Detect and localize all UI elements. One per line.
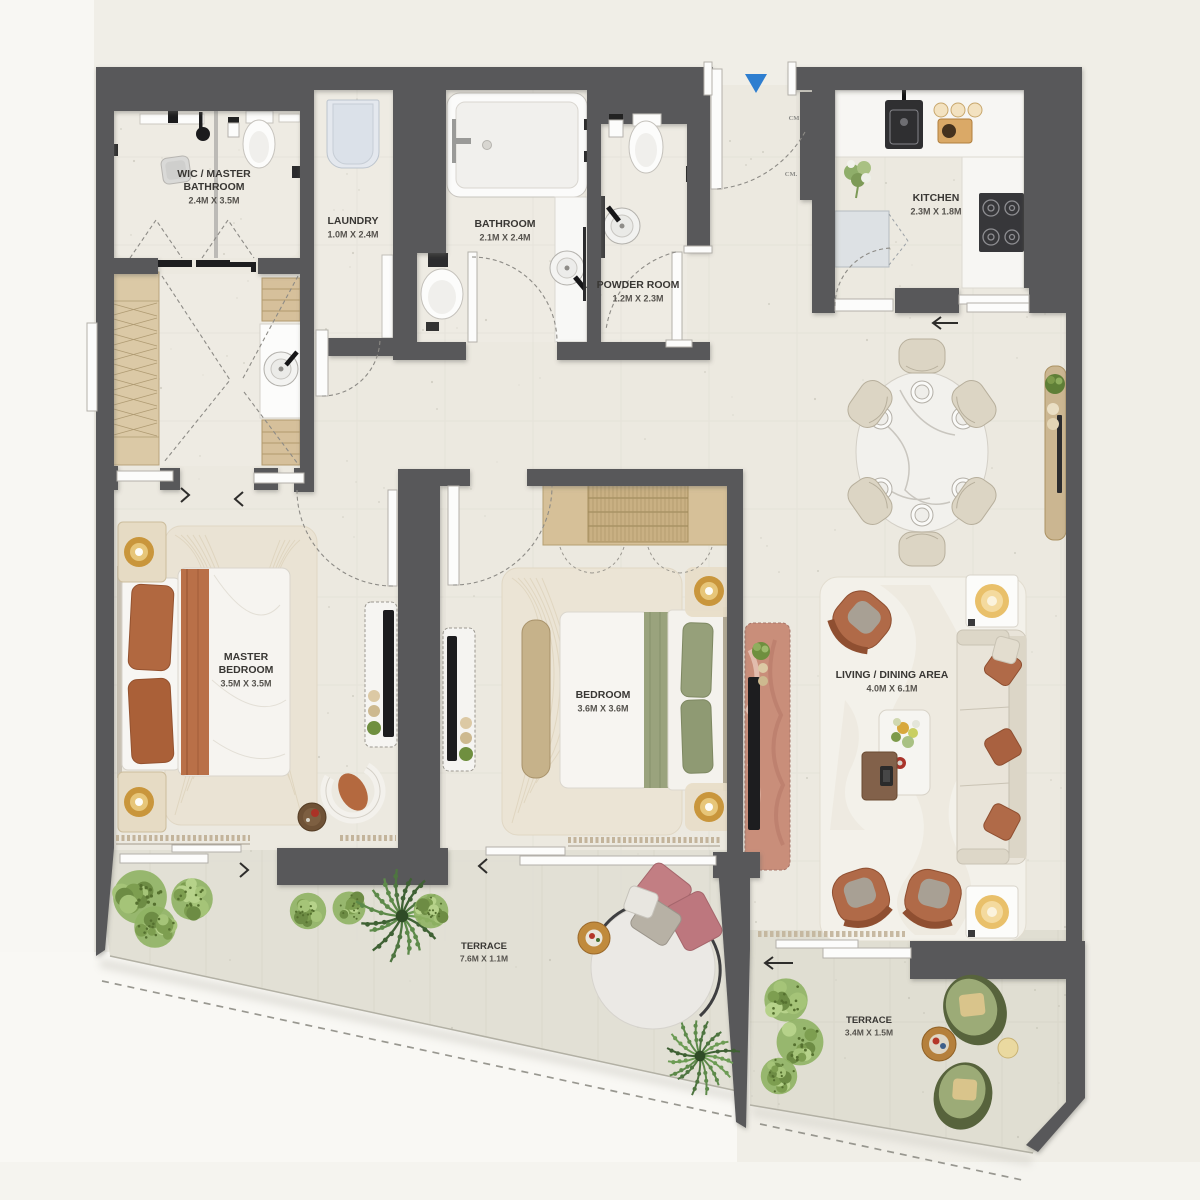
svg-text:BEDROOM: BEDROOM [576,689,631,701]
svg-text:3.6M X 3.6M: 3.6M X 3.6M [577,704,628,714]
svg-text:LIVING / DINING AREA: LIVING / DINING AREA [836,669,949,681]
svg-text:3.5M X 3.5M: 3.5M X 3.5M [220,679,271,689]
svg-text:KITCHEN: KITCHEN [913,192,960,204]
svg-text:7.6M X 1.1M: 7.6M X 1.1M [460,954,508,964]
svg-text:BEDROOM: BEDROOM [219,664,274,676]
svg-text:MASTER: MASTER [224,651,269,663]
svg-text:2.3M X 1.8M: 2.3M X 1.8M [910,207,961,217]
svg-text:3.4M X 1.5M: 3.4M X 1.5M [845,1028,893,1038]
svg-text:CM: CM [789,115,800,122]
svg-text:2.4M X 3.5M: 2.4M X 3.5M [188,196,239,206]
svg-text:4.0M X 6.1M: 4.0M X 6.1M [866,684,917,694]
svg-text:1.0M X 2.4M: 1.0M X 2.4M [327,230,378,240]
svg-text:BATHROOM: BATHROOM [183,181,244,193]
svg-text:WIC / MASTER: WIC / MASTER [177,168,251,180]
svg-text:TERRACE: TERRACE [846,1015,892,1026]
svg-text:1.2M X 2.3M: 1.2M X 2.3M [612,294,663,304]
svg-text:TERRACE: TERRACE [461,941,507,952]
svg-text:2.1M X 2.4M: 2.1M X 2.4M [479,233,530,243]
svg-text:POWDER ROOM: POWDER ROOM [597,279,680,291]
svg-text:LAUNDRY: LAUNDRY [328,215,379,227]
svg-text:CM.: CM. [785,171,798,178]
svg-text:BATHROOM: BATHROOM [474,218,535,230]
